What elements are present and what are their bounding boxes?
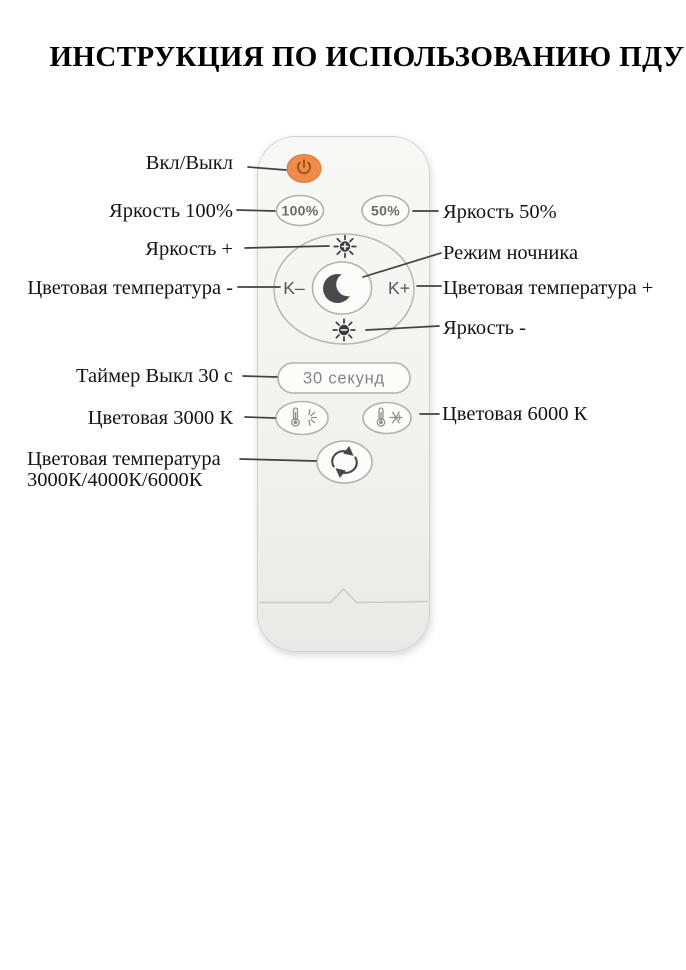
line-color-3000 (245, 417, 275, 418)
color-3000k-button[interactable] (276, 402, 328, 435)
power-button[interactable] (287, 155, 321, 183)
brightness-100-button-label: 100% (281, 203, 318, 219)
label-color-temp-plus: Цветовая температура + (443, 277, 653, 299)
brightness-100-button[interactable]: 100% (277, 196, 324, 226)
label-brightness-100: Яркость 100% (109, 200, 233, 222)
page-title: ИНСТРУКЦИЯ ПО ИСПОЛЬЗОВАНИЮ ПДУ (49, 41, 684, 73)
label-color-6000: Цветовая 6000 К (442, 403, 588, 425)
label-power: Вкл/Выкл (146, 152, 233, 174)
line-timer (243, 376, 277, 377)
brightness-50-button-label: 50% (371, 203, 400, 219)
night-mode-button[interactable] (313, 262, 372, 314)
brightness-50-button[interactable]: 50% (362, 196, 409, 226)
timer-button[interactable]: 30 секунд (278, 363, 410, 393)
label-timer: Таймер Выкл 30 с (76, 365, 233, 387)
label-night-mode: Режим ночника (443, 242, 578, 264)
sun-minus-icon (333, 319, 355, 341)
remote-control: 100% 50% K– K+ (258, 137, 430, 652)
labels-left: Вкл/Выкл Яркость 100% Яркость + Цветовая… (27, 152, 233, 491)
brightness-up-button[interactable] (334, 236, 356, 258)
label-color-temp-minus: Цветовая температура - (27, 277, 233, 299)
power-button-shape[interactable] (287, 155, 321, 183)
kelvin-plus-button[interactable]: K+ (388, 278, 410, 298)
instruction-diagram: ИНСТРУКЦИЯ ПО ИСПОЛЬЗОВАНИЮ ПДУ 100% 50% (0, 0, 686, 970)
color-6000k-button[interactable] (363, 403, 411, 434)
label-color-cycle-line2: 3000К/4000К/6000К (27, 469, 203, 491)
control-pad: K– K+ (274, 234, 414, 344)
labels-right: Яркость 50% Режим ночника Цветовая темпе… (442, 201, 653, 425)
label-brightness-minus: Яркость - (443, 317, 526, 339)
line-brightness-100 (237, 210, 275, 211)
kelvin-minus-button[interactable]: K– (283, 278, 305, 298)
kelvin-plus-label: K+ (388, 278, 410, 298)
timer-button-label: 30 секунд (303, 370, 385, 388)
label-brightness-50: Яркость 50% (443, 201, 557, 223)
sun-plus-icon (334, 236, 356, 258)
kelvin-minus-label: K– (283, 278, 305, 298)
label-color-3000: Цветовая 3000 К (88, 407, 234, 429)
label-color-cycle-line1: Цветовая температура (27, 448, 221, 470)
brightness-down-button[interactable] (333, 319, 355, 341)
color-temp-cycle-button[interactable] (317, 441, 372, 483)
label-brightness-plus: Яркость + (145, 238, 233, 260)
